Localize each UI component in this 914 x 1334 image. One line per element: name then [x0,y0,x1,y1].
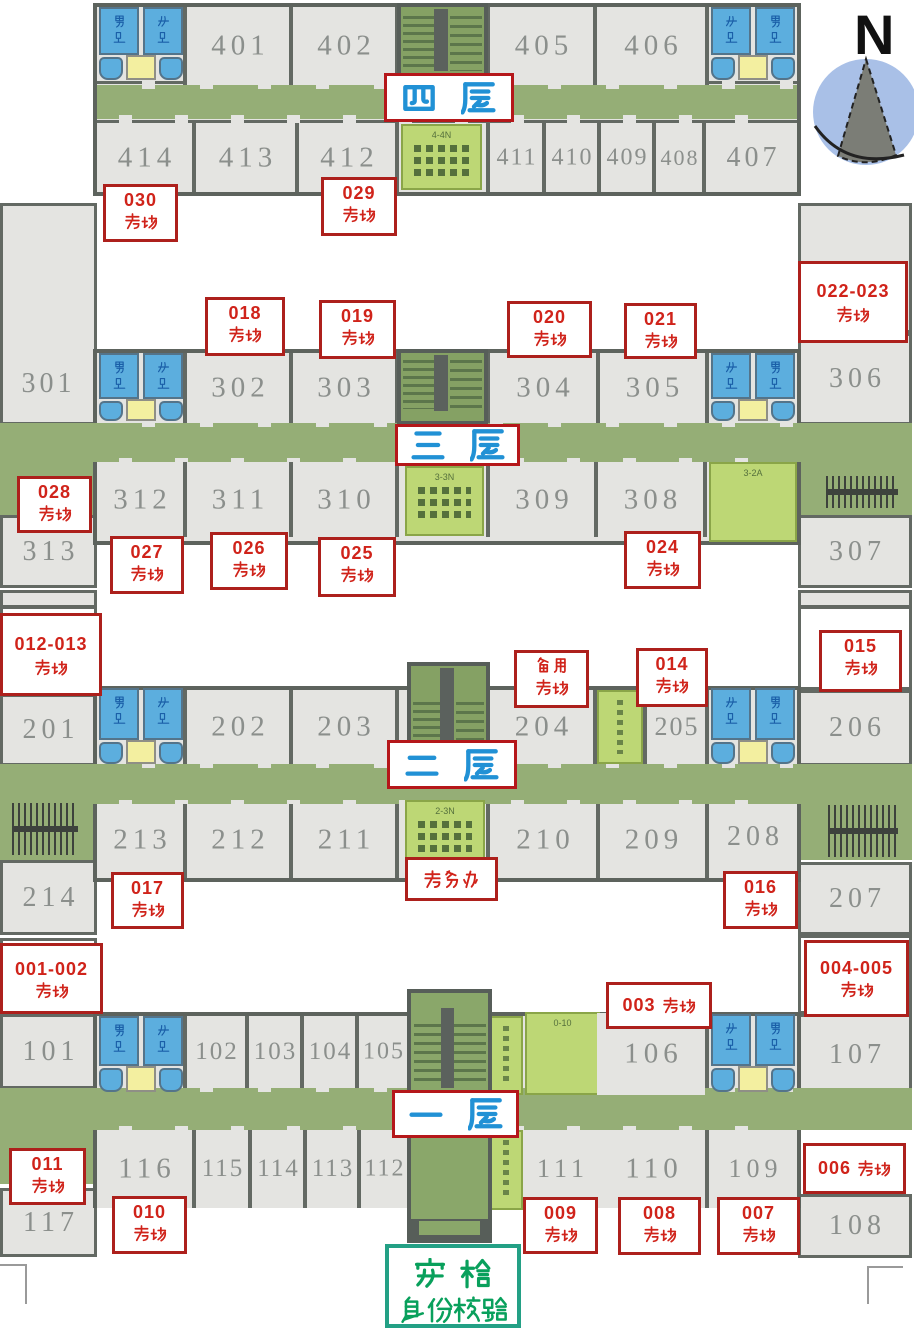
svg-text:N: N [854,3,894,66]
